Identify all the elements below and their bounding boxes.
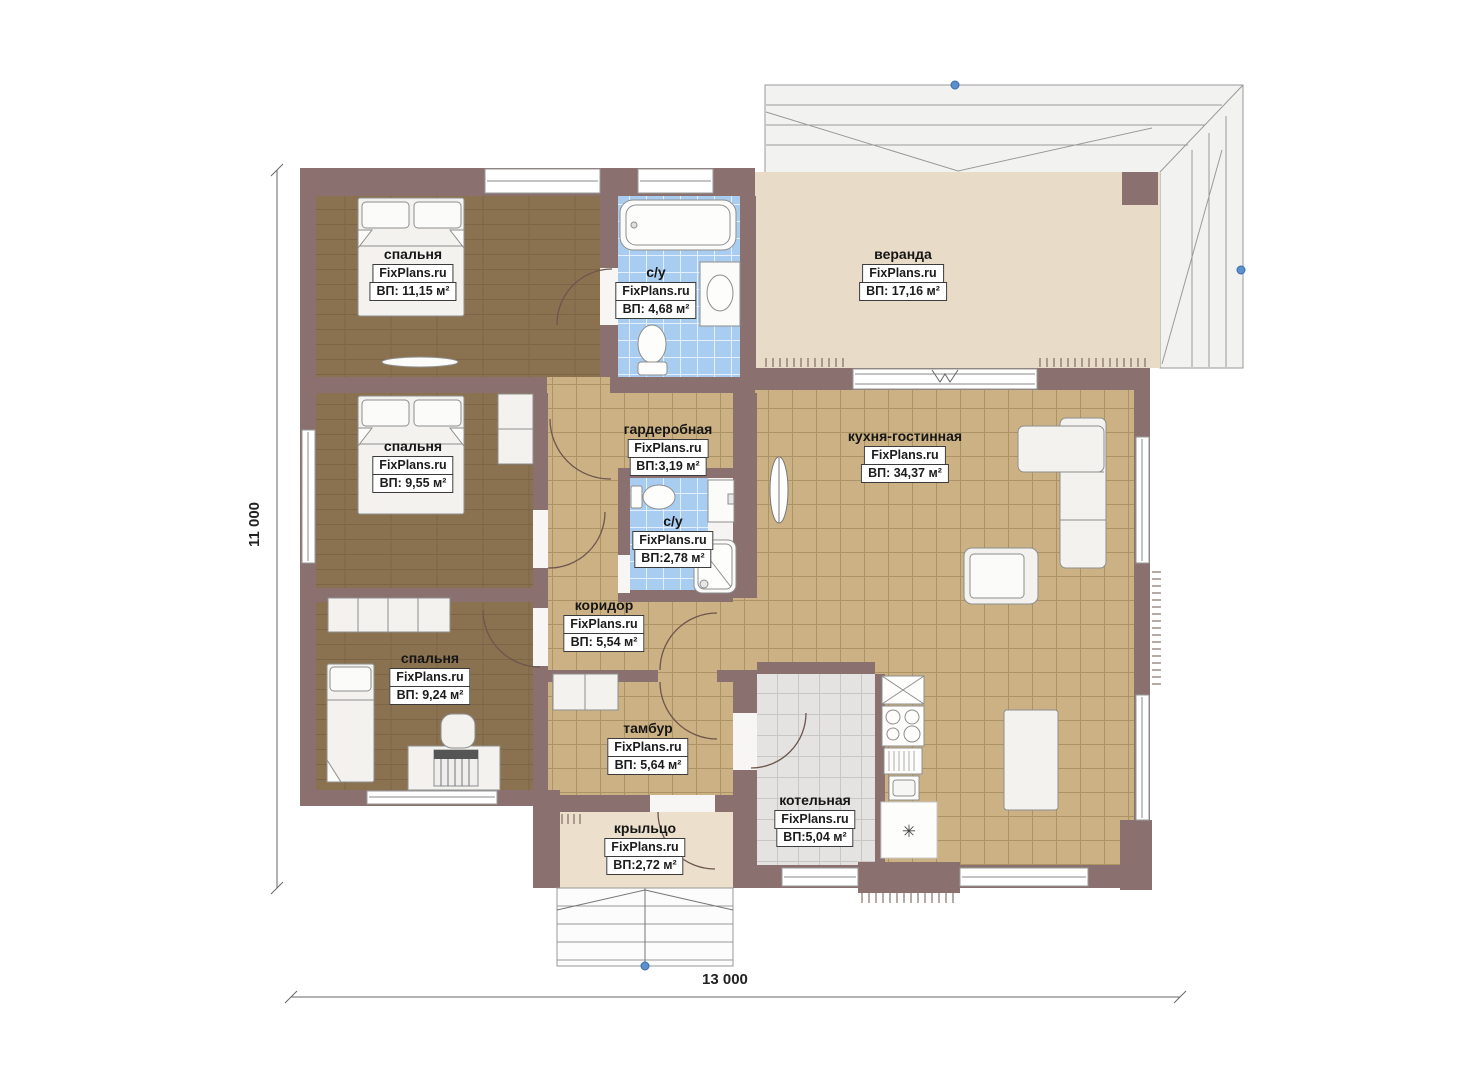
window <box>367 791 497 804</box>
room-area: ВП:5,04 м² <box>776 828 853 847</box>
watermark: FixPlans.ru <box>627 439 708 458</box>
watermark: FixPlans.ru <box>389 668 470 687</box>
room-name: спальня <box>389 650 470 666</box>
room-name: кухня-гостинная <box>848 428 962 444</box>
room-label-bath-2: с/у FixPlans.ru ВП:2,78 м² <box>632 513 713 568</box>
window <box>1136 695 1149 820</box>
bed-single <box>327 664 374 782</box>
room-label-corridor: коридор FixPlans.ru ВП: 5,54 м² <box>563 597 644 652</box>
room-label-kitchen: кухня-гостинная FixPlans.ru ВП: 34,37 м² <box>848 428 962 483</box>
room-name: веранда <box>859 246 947 262</box>
room-label-bedroom-2: спальня FixPlans.ru ВП: 9,55 м² <box>372 438 453 493</box>
room-area: ВП: 9,24 м² <box>390 686 471 705</box>
veranda-floor <box>755 172 1160 368</box>
dimension-vertical: 11 000 <box>246 502 263 547</box>
watermark: FixPlans.ru <box>372 456 453 475</box>
window <box>960 868 1088 886</box>
watermark: FixPlans.ru <box>862 264 943 283</box>
room-area: ВП: 9,55 м² <box>373 474 454 493</box>
room-label-bedroom-3: спальня FixPlans.ru ВП: 9,24 м² <box>389 650 470 705</box>
room-name: коридор <box>563 597 644 613</box>
window <box>1136 437 1149 563</box>
boiler-unit: ✳ <box>881 802 937 858</box>
closet-bedroom3 <box>328 598 450 632</box>
room-area: ВП:3,19 м² <box>629 457 706 476</box>
room-label-wardrobe: гардеробная FixPlans.ru ВП:3,19 м² <box>624 421 713 476</box>
room-label-porch: крыльцо FixPlans.ru ВП:2,72 м² <box>604 820 685 875</box>
chair <box>441 714 475 748</box>
toilet-1 <box>638 325 667 375</box>
roof-right-marker <box>1237 266 1245 274</box>
watermark: FixPlans.ru <box>604 838 685 857</box>
room-area: ВП:2,78 м² <box>634 549 711 568</box>
room-area: ВП: 17,16 м² <box>859 282 947 301</box>
bathtub <box>620 200 736 250</box>
room-label-tambour: тамбур FixPlans.ru ВП: 5,64 м² <box>607 720 688 775</box>
room-area: ВП:2,72 м² <box>606 856 683 875</box>
room-label-boiler: котельная FixPlans.ru ВП:5,04 м² <box>774 792 855 847</box>
dresser <box>382 357 458 367</box>
window <box>638 169 713 193</box>
room-name: спальня <box>372 438 453 454</box>
room-area: ВП: 5,54 м² <box>564 633 645 652</box>
porch-steps <box>557 888 733 966</box>
washbasin-1 <box>700 262 740 326</box>
room-name: с/у <box>615 264 696 280</box>
room-name: крыльцо <box>604 820 685 836</box>
watermark: FixPlans.ru <box>372 264 453 283</box>
floor-plan-svg: ✳ <box>0 0 1474 1080</box>
desk <box>408 746 500 790</box>
boiler-unit-symbol: ✳ <box>902 822 916 841</box>
room-name: с/у <box>632 513 713 529</box>
dimension-horizontal: 13 000 <box>702 971 748 988</box>
kitchen-island <box>1004 710 1058 810</box>
floor-plan-canvas: ✳ спальня FixPlans.ru ВП: 11,15 м <box>0 0 1474 1080</box>
watermark: FixPlans.ru <box>632 531 713 550</box>
watermark: FixPlans.ru <box>864 446 945 465</box>
room-name: спальня <box>369 246 456 262</box>
room-area: ВП: 11,15 м² <box>369 282 456 301</box>
closet-bedroom2 <box>498 394 533 464</box>
room-name: котельная <box>774 792 855 808</box>
window <box>485 169 600 193</box>
watermark: FixPlans.ru <box>607 738 688 757</box>
room-name: тамбур <box>607 720 688 736</box>
roof-top-marker <box>951 81 959 89</box>
toilet-2 <box>631 485 675 509</box>
room-area: ВП: 5,64 м² <box>608 756 689 775</box>
watermark: FixPlans.ru <box>615 282 696 301</box>
steps-marker <box>641 962 649 970</box>
watermark: FixPlans.ru <box>774 810 855 829</box>
plant <box>770 457 788 523</box>
watermark: FixPlans.ru <box>563 615 644 634</box>
window <box>782 868 858 886</box>
sink <box>889 776 919 800</box>
fridge <box>882 676 924 704</box>
room-label-bedroom-1: спальня FixPlans.ru ВП: 11,15 м² <box>369 246 456 301</box>
room-area: ВП: 4,68 м² <box>616 300 697 319</box>
room-name: гардеробная <box>624 421 713 437</box>
armchair <box>964 548 1038 604</box>
closet-tambour <box>553 674 618 710</box>
cooktop <box>882 706 924 746</box>
kitchen-counter <box>884 748 922 774</box>
room-area: ВП: 34,37 м² <box>861 464 949 483</box>
room-label-bath-1: с/у FixPlans.ru ВП: 4,68 м² <box>615 264 696 319</box>
room-label-veranda: веранда FixPlans.ru ВП: 17,16 м² <box>859 246 947 301</box>
sliding-door <box>853 369 1037 389</box>
window <box>302 430 315 563</box>
